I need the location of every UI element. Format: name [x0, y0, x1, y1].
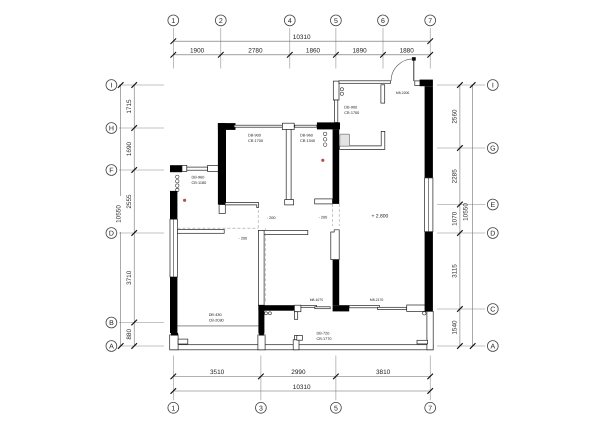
svg-text:3115: 3115 — [452, 264, 459, 278]
svg-text:3710: 3710 — [126, 270, 133, 285]
svg-text:- 200: - 200 — [239, 236, 248, 240]
svg-text:1070: 1070 — [452, 211, 459, 226]
svg-text:DB-960: DB-960 — [192, 176, 205, 180]
svg-text:- 200: - 200 — [319, 216, 328, 220]
svg-text:B: B — [109, 320, 114, 327]
svg-text:E: E — [490, 202, 495, 209]
svg-text:2285: 2285 — [452, 169, 459, 184]
svg-text:1860: 1860 — [306, 47, 321, 54]
svg-text:DB-900: DB-900 — [344, 106, 357, 110]
svg-text:+ 2.800: + 2.800 — [372, 213, 389, 219]
svg-text:CB-2030: CB-2030 — [209, 318, 224, 322]
svg-text:2560: 2560 — [452, 109, 459, 124]
svg-text:2: 2 — [219, 18, 223, 25]
svg-text:I: I — [110, 83, 112, 90]
svg-text:1900: 1900 — [190, 47, 205, 54]
svg-text:DB-960: DB-960 — [300, 134, 313, 138]
svg-text:DB-720: DB-720 — [317, 332, 330, 336]
svg-text:7: 7 — [428, 18, 432, 25]
svg-text:A: A — [109, 344, 114, 351]
svg-text:H: H — [109, 126, 114, 133]
svg-text:DB-900: DB-900 — [248, 134, 261, 138]
svg-text:6: 6 — [381, 18, 385, 25]
svg-text:A: A — [490, 344, 495, 351]
svg-text:2990: 2990 — [291, 369, 306, 376]
svg-text:D: D — [109, 231, 114, 238]
svg-text:CB-1700: CB-1700 — [248, 139, 263, 143]
svg-text:C: C — [490, 307, 495, 314]
svg-text:880: 880 — [126, 329, 133, 340]
svg-text:10310: 10310 — [293, 384, 311, 391]
svg-text:5: 5 — [334, 18, 338, 25]
svg-text:CB-1340: CB-1340 — [300, 139, 315, 143]
svg-text:2780: 2780 — [248, 47, 263, 54]
svg-text:1: 1 — [171, 18, 175, 25]
svg-text:1540: 1540 — [452, 320, 459, 335]
svg-text:10550: 10550 — [116, 205, 123, 223]
svg-text:10550: 10550 — [462, 203, 469, 221]
svg-text:3: 3 — [259, 405, 263, 412]
svg-text:3510: 3510 — [210, 369, 225, 376]
svg-text:G: G — [490, 146, 495, 153]
svg-text:7: 7 — [428, 405, 432, 412]
svg-text:F: F — [109, 168, 113, 175]
svg-text:1890: 1890 — [352, 47, 367, 54]
svg-text:1: 1 — [171, 405, 175, 412]
svg-text:DB-430: DB-430 — [209, 313, 222, 317]
svg-text:M8-2200: M8-2200 — [396, 91, 409, 95]
svg-text:5: 5 — [334, 405, 338, 412]
svg-text:M8-1075: M8-1075 — [310, 298, 323, 302]
svg-text:10310: 10310 — [293, 34, 311, 41]
svg-text:2555: 2555 — [126, 194, 133, 209]
svg-text:CB-1700: CB-1700 — [344, 111, 359, 115]
svg-text:CB-1770: CB-1770 — [317, 337, 332, 341]
svg-text:4: 4 — [288, 18, 292, 25]
svg-text:D: D — [490, 231, 495, 238]
svg-text:- 200: - 200 — [267, 216, 276, 220]
svg-text:CB-1180: CB-1180 — [192, 181, 207, 185]
svg-text:I: I — [492, 83, 494, 90]
svg-text:1715: 1715 — [126, 99, 133, 114]
svg-text:1690: 1690 — [126, 141, 133, 156]
svg-text:3810: 3810 — [376, 369, 391, 376]
svg-text:M8-2170: M8-2170 — [370, 298, 383, 302]
svg-text:1880: 1880 — [400, 47, 415, 54]
